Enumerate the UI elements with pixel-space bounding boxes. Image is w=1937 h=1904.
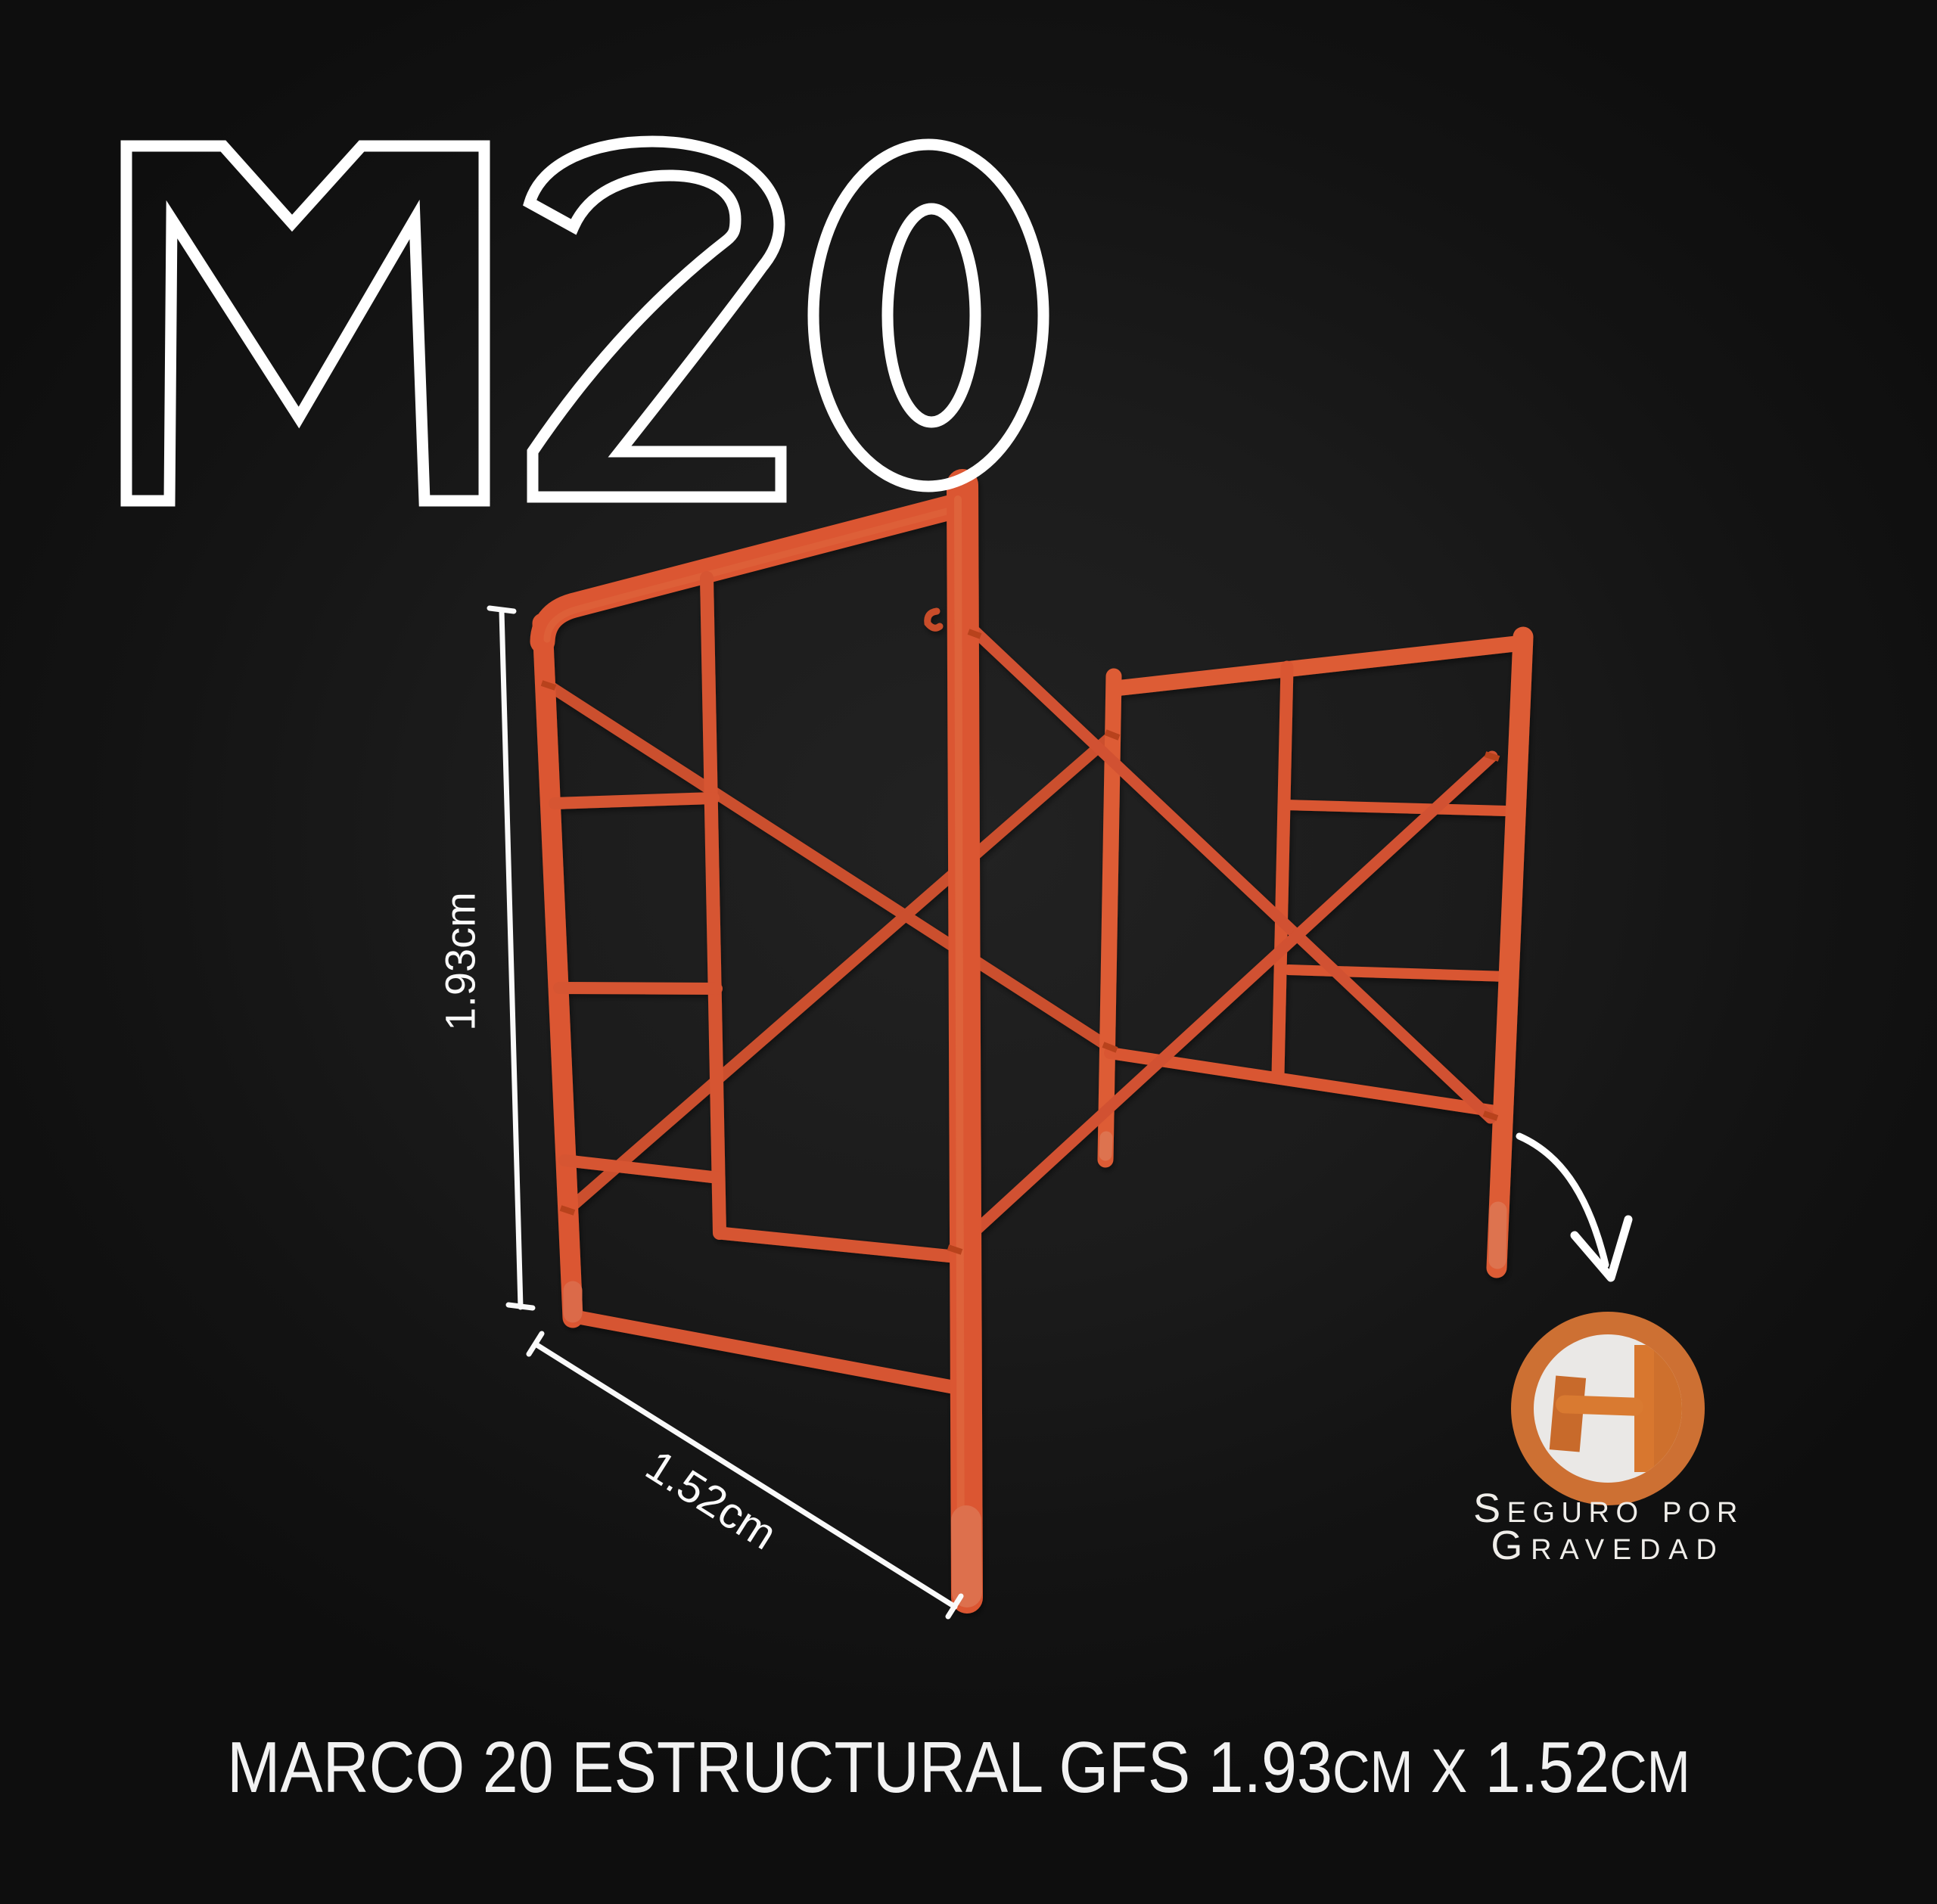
svg-text:1.52cm: 1.52cm [637,1441,785,1560]
svg-text:MARCO 20 ESTRUCTURAL GFS 1.93C: MARCO 20 ESTRUCTURAL GFS 1.93CM X 1.52CM [227,1727,1690,1808]
svg-text:1.93cm: 1.93cm [437,892,484,1031]
svg-text:Gravedad: Gravedad [1491,1523,1724,1568]
